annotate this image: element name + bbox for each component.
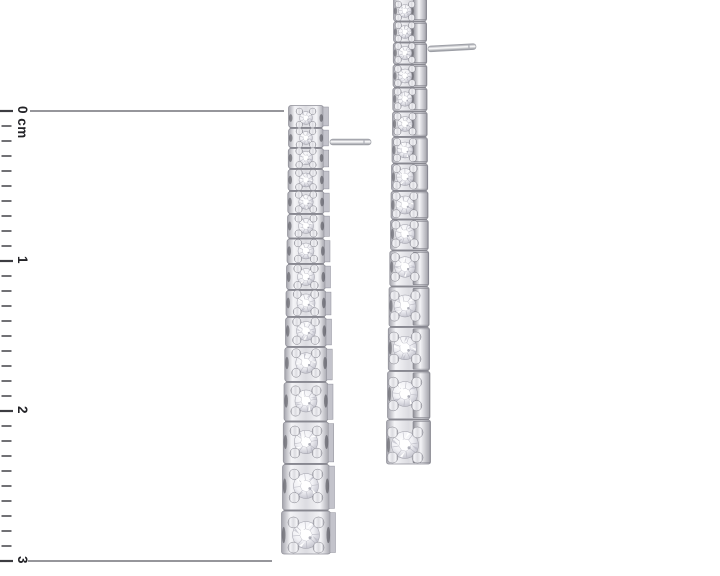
- prong: [410, 253, 419, 262]
- prong: [294, 265, 302, 273]
- prong: [310, 184, 317, 191]
- prong: [288, 517, 299, 528]
- prong: [296, 128, 303, 135]
- prong: [310, 162, 317, 169]
- prong: [408, 22, 415, 29]
- setting-depth-edge: [323, 130, 329, 146]
- prong: [411, 354, 421, 364]
- prong: [395, 43, 402, 50]
- prong: [313, 517, 324, 528]
- prong: [409, 165, 417, 173]
- prong: [309, 128, 316, 135]
- prong: [296, 141, 303, 148]
- prong: [394, 103, 401, 110]
- setting-depth-edge: [328, 424, 334, 462]
- setting-depth-edge: [327, 349, 333, 380]
- prong: [312, 386, 321, 395]
- prong: [409, 154, 417, 162]
- prong: [410, 272, 419, 281]
- prong: [310, 169, 317, 176]
- ruler: [0, 111, 13, 561]
- prong: [310, 281, 318, 289]
- prong: [290, 426, 300, 436]
- prong: [392, 239, 400, 247]
- prong: [412, 377, 422, 387]
- prong: [409, 138, 417, 146]
- setting-depth-edge: [325, 266, 331, 288]
- prong: [295, 230, 302, 237]
- product-photo: 0 cm 1 2 3: [0, 0, 720, 576]
- prong: [387, 427, 398, 438]
- prong: [311, 290, 319, 298]
- prong: [311, 368, 320, 377]
- prong: [293, 290, 301, 298]
- earring-right-side-view: [387, 0, 477, 464]
- setting-depth-edge: [323, 107, 329, 126]
- prong: [295, 191, 302, 198]
- prong: [313, 469, 323, 479]
- prong: [408, 14, 415, 21]
- prong: [409, 181, 417, 189]
- prong: [410, 221, 418, 229]
- prong: [409, 57, 416, 64]
- prong: [392, 221, 400, 229]
- prong: [412, 427, 423, 438]
- ruler-label-1: 1: [16, 256, 30, 264]
- prong: [410, 239, 418, 247]
- setting-depth-edge: [326, 292, 332, 315]
- prong: [395, 14, 402, 21]
- prong: [410, 210, 418, 218]
- prong: [309, 141, 316, 148]
- prong: [395, 35, 402, 42]
- prong: [393, 181, 401, 189]
- prong: [310, 191, 317, 198]
- prong: [294, 239, 302, 247]
- prong: [289, 469, 299, 479]
- prong: [411, 312, 420, 321]
- prong: [290, 448, 300, 458]
- ruler-label-2: 2: [16, 406, 30, 414]
- prong: [294, 281, 302, 289]
- prong: [388, 401, 398, 411]
- setting-depth-edge: [330, 513, 336, 553]
- prong: [394, 80, 401, 87]
- prong: [310, 148, 317, 155]
- prong: [312, 407, 321, 416]
- prong: [311, 308, 319, 316]
- prong: [391, 253, 400, 262]
- prong: [312, 448, 322, 458]
- prong: [296, 162, 303, 169]
- setting-depth-edge: [324, 193, 330, 212]
- prong: [392, 192, 400, 200]
- prong: [310, 265, 318, 273]
- prong: [295, 215, 302, 222]
- prong: [389, 332, 399, 342]
- earring-left-front-view: [282, 106, 372, 555]
- prong: [395, 57, 402, 64]
- ear-post: [428, 44, 476, 52]
- prong: [295, 206, 302, 213]
- scene-canvas: [0, 0, 720, 576]
- setting-depth-edge: [325, 241, 331, 262]
- prong: [313, 493, 323, 503]
- prong: [395, 1, 402, 8]
- prong: [391, 272, 400, 281]
- setting-depth-edge: [326, 319, 332, 345]
- prong: [310, 215, 317, 222]
- prong: [390, 291, 399, 300]
- prong: [394, 88, 401, 95]
- prong: [311, 336, 319, 344]
- prong: [312, 426, 322, 436]
- prong: [291, 407, 300, 416]
- prong: [310, 230, 317, 237]
- prong: [390, 312, 399, 321]
- prong: [296, 121, 303, 128]
- setting-depth-edge: [323, 150, 329, 167]
- prong: [388, 377, 398, 387]
- setting-depth-edge: [324, 171, 330, 189]
- prong: [387, 452, 398, 463]
- prong: [412, 401, 422, 411]
- setting-depth-edge: [324, 216, 330, 236]
- prong: [408, 35, 415, 42]
- prong: [393, 154, 401, 162]
- prong: [311, 349, 320, 358]
- prong: [296, 108, 303, 115]
- ruler-label-0cm: 0 cm: [16, 106, 30, 139]
- prong: [309, 121, 316, 128]
- prong: [295, 184, 302, 191]
- prong: [309, 108, 316, 115]
- prong: [394, 128, 401, 135]
- prong: [293, 308, 301, 316]
- setting-depth-edge: [329, 466, 335, 508]
- prong: [310, 239, 318, 247]
- prong: [411, 332, 421, 342]
- prong: [409, 128, 416, 135]
- prong: [293, 336, 301, 344]
- prong: [292, 349, 301, 358]
- prong: [295, 169, 302, 176]
- prong: [289, 493, 299, 503]
- prong: [408, 1, 415, 8]
- prong: [310, 206, 317, 213]
- prong: [411, 291, 420, 300]
- prong: [293, 318, 301, 326]
- prong: [393, 138, 401, 146]
- prong: [294, 255, 302, 263]
- prong: [291, 386, 300, 395]
- prong: [409, 43, 416, 50]
- prong: [394, 65, 401, 72]
- prong: [409, 80, 416, 87]
- prong: [313, 542, 324, 553]
- prong: [394, 113, 401, 120]
- prong: [296, 148, 303, 155]
- ruler-label-3: 3: [16, 556, 30, 564]
- prong: [412, 452, 423, 463]
- prong: [410, 192, 418, 200]
- prong: [395, 22, 402, 29]
- prong: [311, 318, 319, 326]
- prong: [392, 210, 400, 218]
- prong: [409, 103, 416, 110]
- prong: [389, 354, 399, 364]
- prong: [393, 165, 401, 173]
- prong: [409, 88, 416, 95]
- prong: [288, 542, 299, 553]
- prong: [409, 65, 416, 72]
- prong: [409, 113, 416, 120]
- ear-post: [330, 139, 371, 145]
- setting-depth-edge: [328, 384, 334, 419]
- prong: [292, 368, 301, 377]
- prong: [310, 255, 318, 263]
